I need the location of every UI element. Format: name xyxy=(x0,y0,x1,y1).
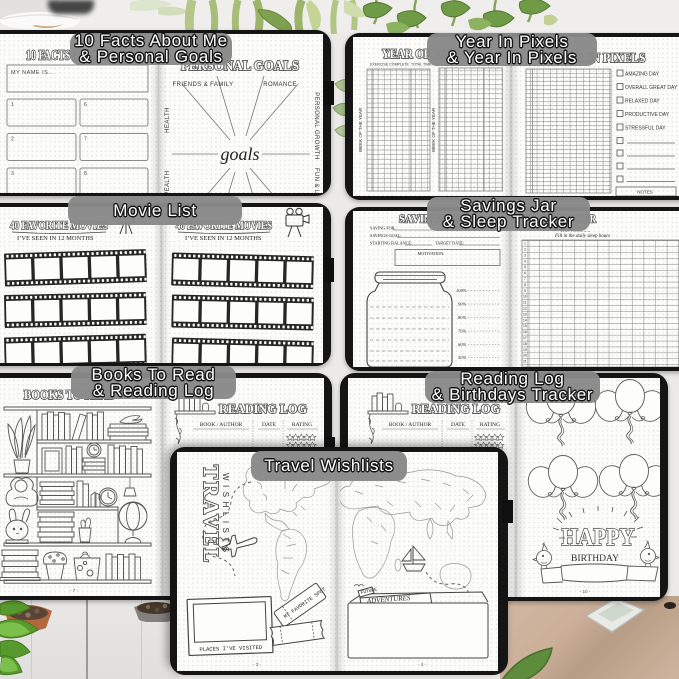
svg-text:DATE: DATE xyxy=(262,422,277,428)
svg-text:80%: 80% xyxy=(458,315,467,320)
svg-text:100%: 100% xyxy=(456,288,467,293)
svg-text:BOOK / AUTHOR: BOOK / AUTHOR xyxy=(389,422,432,428)
svg-text:ROMANCE: ROMANCE xyxy=(263,82,296,88)
svg-text:90%: 90% xyxy=(458,302,467,307)
svg-text:DATE: DATE xyxy=(451,422,466,428)
svg-text:WEEK OF THE YEAR: WEEK OF THE YEAR xyxy=(431,107,436,152)
svg-text:- 10 -: - 10 - xyxy=(580,589,591,594)
svg-text:60%: 60% xyxy=(458,342,467,347)
svg-text:2: 2 xyxy=(11,136,14,142)
svg-text:goals: goals xyxy=(220,144,259,164)
svg-text:PERSONAL GROWTH: PERSONAL GROWTH xyxy=(313,92,319,159)
svg-text:14: 14 xyxy=(523,318,527,322)
svg-text:PRODUCTIVE DAY: PRODUCTIVE DAY xyxy=(625,112,670,118)
svg-text:TRAVEL: TRAVEL xyxy=(199,465,223,565)
svg-text:16: 16 xyxy=(523,330,527,334)
svg-text:RATING: RATING xyxy=(292,422,312,428)
svg-text:- 3 -: - 3 - xyxy=(253,662,262,667)
svg-text:5: 5 xyxy=(524,265,526,269)
svg-text:I’VE SEEN IN 12 MONTHS: I’VE SEEN IN 12 MONTHS xyxy=(17,235,94,242)
svg-text:7: 7 xyxy=(524,277,526,281)
svg-text:70%: 70% xyxy=(458,329,467,334)
svg-text:OVERALL GREAT DAY: OVERALL GREAT DAY xyxy=(625,85,678,91)
svg-text:10: 10 xyxy=(523,295,527,299)
svg-text:WEALTH: WEALTH xyxy=(165,170,171,192)
svg-text:- 4 -: - 4 - xyxy=(418,662,427,667)
svg-text:AMAZING DAY: AMAZING DAY xyxy=(625,72,660,78)
svg-text:19: 19 xyxy=(523,348,527,352)
svg-text:SAVING FOR:: SAVING FOR: xyxy=(370,226,396,231)
svg-text:3: 3 xyxy=(524,253,526,257)
svg-text:8: 8 xyxy=(524,283,526,287)
svg-text:8: 8 xyxy=(84,171,87,177)
svg-text:STRESSFUL DAY: STRESSFUL DAY xyxy=(625,126,666,132)
svg-text:BIRTHDAY: BIRTHDAY xyxy=(571,553,620,563)
svg-text:20: 20 xyxy=(523,354,527,358)
svg-text:11: 11 xyxy=(523,301,527,305)
svg-text:RELAXED DAY: RELAXED DAY xyxy=(625,99,660,105)
svg-text:WEEK OF THE YEAR: WEEK OF THE YEAR xyxy=(358,107,363,152)
svg-text:6: 6 xyxy=(524,271,526,275)
svg-text:1: 1 xyxy=(11,102,14,108)
svg-text:50%: 50% xyxy=(458,355,467,360)
svg-text:RATING: RATING xyxy=(480,422,500,428)
svg-text:MY NAME IS...: MY NAME IS... xyxy=(11,70,54,76)
svg-text:1: 1 xyxy=(524,242,526,246)
svg-text:HEALTH: HEALTH xyxy=(165,107,171,133)
svg-text:I’VE SEEN IN 12 MONTHS: I’VE SEEN IN 12 MONTHS xyxy=(185,235,262,242)
svg-text:- 7 -: - 7 - xyxy=(70,588,79,593)
svg-text:7: 7 xyxy=(84,136,87,142)
svg-text:2: 2 xyxy=(524,248,526,252)
svg-text:HAPPY: HAPPY xyxy=(562,525,635,551)
svg-text:FUN & LEI: FUN & LEI xyxy=(313,167,319,192)
svg-text:BOOK / AUTHOR: BOOK / AUTHOR xyxy=(200,422,243,428)
svg-text:18: 18 xyxy=(523,342,527,346)
svg-text:EXERCISE COMPLETE: EXERCISE COMPLETE xyxy=(370,63,410,67)
svg-text:MOTIVATION:: MOTIVATION: xyxy=(418,251,445,256)
svg-text:13: 13 xyxy=(523,312,527,316)
svg-text:SAVINGS GOAL:: SAVINGS GOAL: xyxy=(370,233,401,238)
svg-text:4: 4 xyxy=(524,259,526,263)
svg-text:FRIENDS & FAMILY: FRIENDS & FAMILY xyxy=(173,82,234,88)
svg-text:6: 6 xyxy=(84,102,87,108)
svg-text:12: 12 xyxy=(523,307,527,311)
svg-text:NOTES: NOTES xyxy=(637,190,653,195)
svg-text:9: 9 xyxy=(524,289,526,293)
svg-text:21: 21 xyxy=(523,360,527,364)
svg-text:15: 15 xyxy=(523,324,527,328)
svg-text:3: 3 xyxy=(11,171,14,177)
svg-text:READING LOG: READING LOG xyxy=(219,401,307,416)
svg-text:17: 17 xyxy=(523,336,527,340)
svg-text:Fill in the daily sleep hours: Fill in the daily sleep hours xyxy=(554,234,610,239)
